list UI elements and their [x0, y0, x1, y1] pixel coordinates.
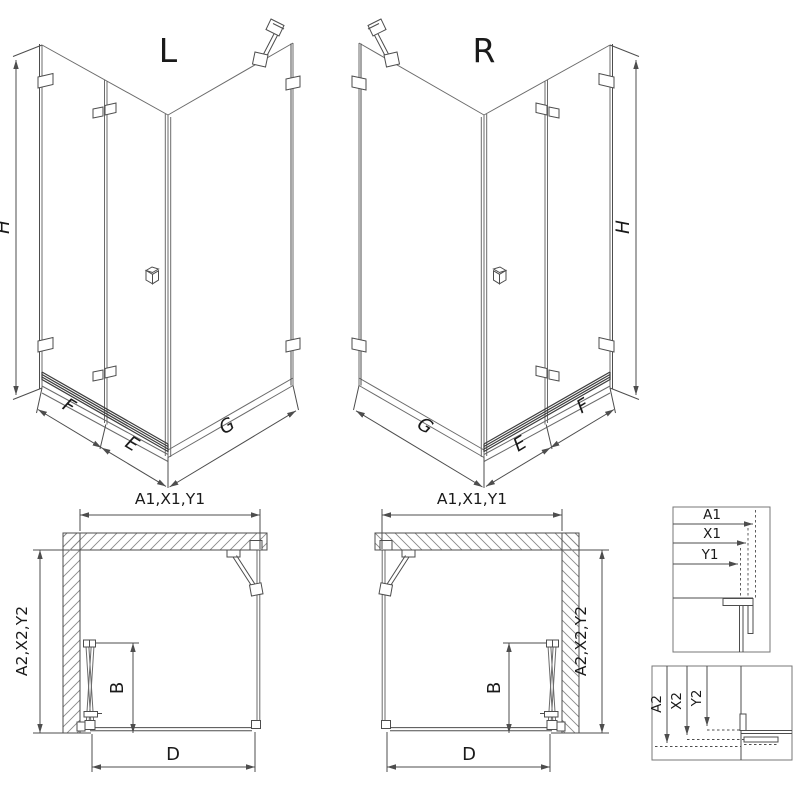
detail-depth-box: A2 X2 Y2 [649, 666, 792, 760]
detail-width-dim-y1: Y1 [701, 547, 719, 563]
plan-right-depth-dims: A2,X2,Y2 [572, 606, 590, 676]
detail-width-dim-x1: X1 [703, 526, 721, 542]
plan-right-opening-width: D [462, 744, 476, 765]
wall-profile-section [723, 599, 753, 653]
plan-right-width-dims: A1,X1,Y1 [437, 490, 507, 508]
dim-label-fixed-right: F [573, 394, 593, 418]
dim-label-height-left: H [0, 220, 14, 234]
iso-right-labels: R H G E F [413, 31, 634, 456]
plan-left-door-width: B [107, 682, 128, 694]
dim-label-door-left: E [121, 432, 142, 456]
dim-label-fixed-left: F [59, 395, 79, 419]
plan-right-door-width: B [484, 682, 505, 694]
technical-drawing-page: L H F E G R H G E F A1,X1,Y1 A2,X2,Y2 B … [0, 0, 800, 800]
dim-label-door-right: E [510, 432, 531, 456]
detail-width-box: A1 X1 Y1 [673, 507, 770, 652]
iso-view-left [13, 19, 300, 488]
iso-view-right [352, 19, 639, 488]
dim-label-side-left: G [216, 414, 239, 439]
variant-label-right: R [473, 31, 496, 70]
plan-left-opening-width: D [166, 744, 180, 765]
detail-width-dim-a1: A1 [703, 507, 721, 523]
plan-left-labels: A1,X1,Y1 A2,X2,Y2 B D [13, 490, 205, 765]
dim-label-height-right: H [613, 220, 634, 234]
detail-depth-dim-y2: Y2 [689, 690, 705, 708]
tray-profile-section [740, 714, 792, 745]
variant-label-left: L [159, 31, 178, 70]
detail-depth-dim-a2: A2 [649, 695, 665, 713]
shower-enclosure-drawing: L H F E G R H G E F A1,X1,Y1 A2,X2,Y2 B … [0, 0, 800, 800]
plan-view-left [33, 509, 267, 772]
plan-left-width-dims: A1,X1,Y1 [135, 490, 205, 508]
detail-depth-dim-x2: X2 [669, 692, 685, 710]
dim-label-side-right: G [413, 414, 436, 439]
plan-left-depth-dims: A2,X2,Y2 [13, 606, 31, 676]
